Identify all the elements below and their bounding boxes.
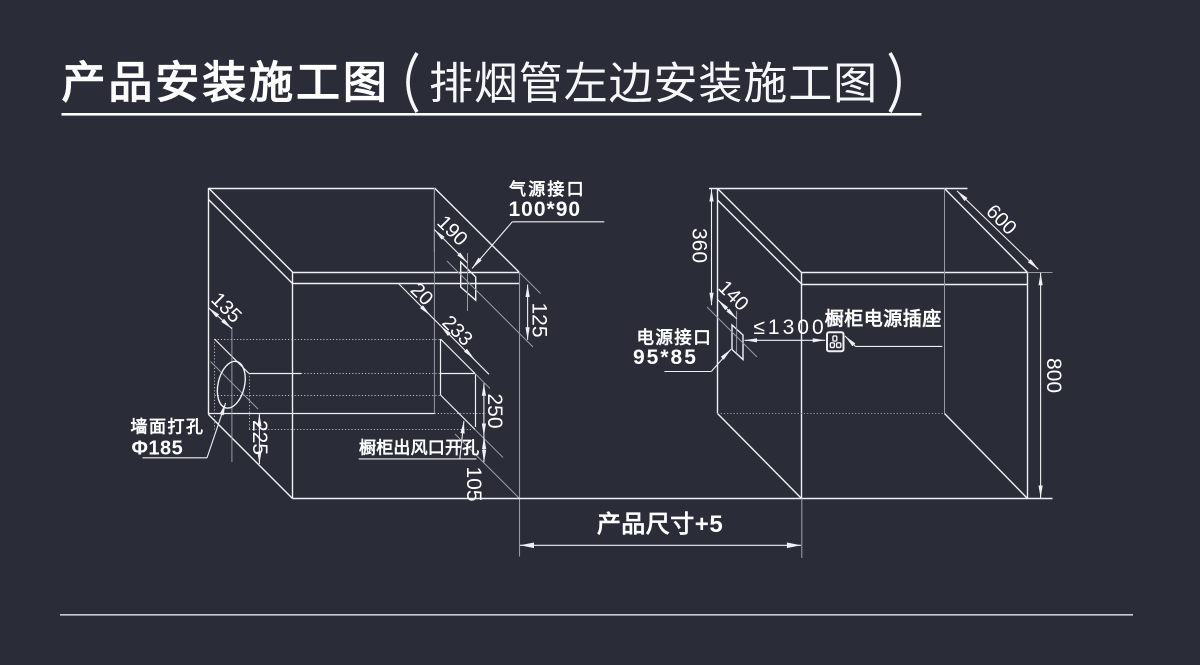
svg-text:100*90: 100*90 (509, 198, 582, 221)
svg-text:225: 225 (248, 420, 271, 455)
svg-text:360: 360 (688, 228, 711, 263)
svg-text:250: 250 (483, 393, 506, 428)
svg-text:产品安装施工图: 产品安装施工图 (62, 59, 390, 108)
svg-text:产品尺寸+5: 产品尺寸+5 (597, 510, 723, 538)
svg-text:电源接口: 电源接口 (637, 328, 713, 348)
svg-text:墙面打孔: 墙面打孔 (131, 417, 205, 437)
svg-text:125: 125 (528, 302, 551, 337)
svg-text:排烟管左边安装施工图: 排烟管左边安装施工图 (429, 60, 878, 109)
svg-text:105: 105 (462, 466, 485, 501)
svg-text:橱柜电源插座: 橱柜电源插座 (824, 307, 942, 330)
svg-text:≤1300: ≤1300 (753, 316, 826, 339)
svg-text:气源接口: 气源接口 (508, 179, 586, 199)
svg-text:95*85: 95*85 (633, 346, 698, 369)
svg-text:Φ185: Φ185 (132, 438, 184, 460)
svg-text:800: 800 (1042, 358, 1065, 393)
